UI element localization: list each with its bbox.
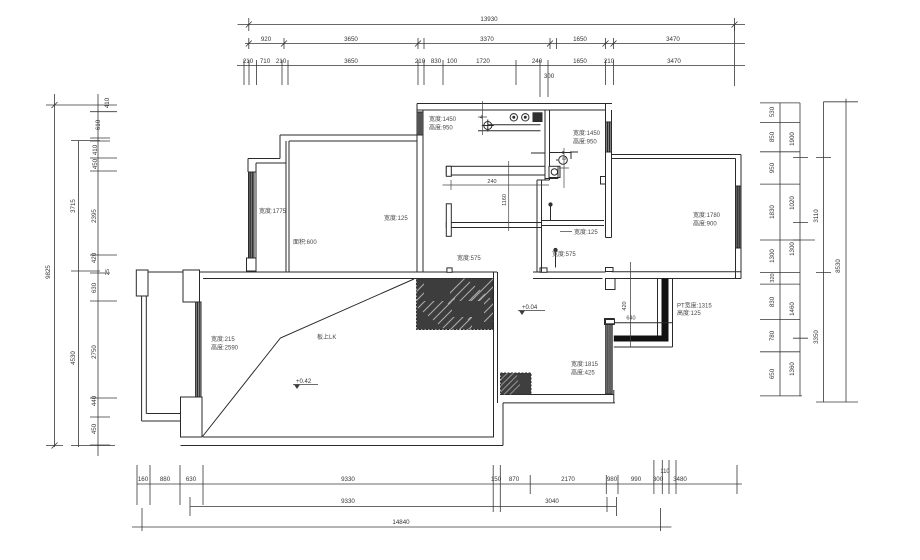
svg-text:9330: 9330	[341, 498, 355, 505]
svg-text:宽度:575: 宽度:575	[457, 254, 481, 262]
svg-text:1650: 1650	[573, 36, 587, 43]
svg-text:420: 420	[622, 301, 628, 310]
svg-text:3040: 3040	[545, 498, 559, 505]
svg-text:100: 100	[447, 58, 458, 65]
svg-text:2395: 2395	[91, 209, 98, 223]
svg-text:920: 920	[261, 36, 272, 43]
svg-text:320: 320	[770, 273, 776, 282]
svg-text:240: 240	[487, 179, 496, 185]
svg-text:宽度:1775: 宽度:1775	[259, 207, 287, 215]
svg-text:870: 870	[509, 476, 520, 483]
svg-text:3350: 3350	[813, 330, 820, 344]
svg-text:420: 420	[91, 252, 98, 263]
svg-text:410: 410	[104, 97, 111, 108]
svg-text:1160: 1160	[502, 194, 508, 206]
svg-text:宽度:215: 宽度:215	[211, 335, 235, 343]
svg-text:PT宽度:1315: PT宽度:1315	[677, 302, 712, 310]
svg-text:高度:2590: 高度:2590	[211, 344, 239, 352]
svg-text:830: 830	[431, 58, 442, 65]
svg-text:880: 880	[160, 476, 171, 483]
svg-text:1900: 1900	[789, 132, 796, 146]
svg-text:宽度:1450: 宽度:1450	[429, 115, 457, 123]
svg-text:高度:125: 高度:125	[677, 309, 701, 317]
svg-text:650: 650	[769, 368, 776, 379]
svg-text:3715: 3715	[70, 199, 77, 213]
svg-text:1650: 1650	[573, 58, 587, 65]
svg-text:高度:950: 高度:950	[429, 124, 453, 132]
svg-text:450: 450	[91, 423, 98, 434]
svg-text:8: 8	[562, 157, 568, 160]
svg-text:530: 530	[769, 106, 776, 117]
svg-text:3370: 3370	[480, 36, 494, 43]
svg-text:3480: 3480	[673, 476, 687, 483]
svg-text:160: 160	[138, 476, 149, 483]
svg-text:640: 640	[626, 316, 635, 322]
svg-text:210: 210	[604, 58, 615, 65]
svg-text:630: 630	[186, 476, 197, 483]
svg-text:3650: 3650	[344, 36, 358, 43]
svg-text:宽度:575: 宽度:575	[552, 250, 576, 258]
svg-text:1360: 1360	[789, 362, 796, 376]
svg-text:300: 300	[653, 476, 664, 483]
svg-text:610: 610	[95, 119, 102, 130]
svg-text:410: 410	[92, 144, 99, 155]
svg-text:4: 4	[480, 115, 483, 121]
svg-text:14840: 14840	[392, 519, 410, 526]
svg-text:440: 440	[91, 395, 98, 406]
svg-text:高度:425: 高度:425	[571, 369, 595, 377]
svg-text:990: 990	[631, 476, 642, 483]
svg-text:4530: 4530	[70, 351, 77, 365]
svg-text:1460: 1460	[789, 302, 796, 316]
svg-text:3470: 3470	[667, 58, 681, 65]
svg-text:高度:950: 高度:950	[573, 138, 597, 146]
svg-text:3110: 3110	[813, 209, 820, 223]
svg-text:9825: 9825	[45, 265, 52, 279]
svg-text:3650: 3650	[344, 58, 358, 65]
svg-text:710: 710	[260, 58, 271, 65]
svg-text:25: 25	[105, 269, 111, 275]
svg-text:9330: 9330	[341, 476, 355, 483]
svg-text:13930: 13930	[480, 16, 498, 23]
svg-text:150: 150	[491, 476, 502, 483]
svg-text:780: 780	[769, 330, 776, 341]
svg-text:1020: 1020	[789, 196, 796, 210]
svg-text:830: 830	[769, 296, 776, 307]
svg-text:110: 110	[660, 469, 670, 475]
svg-text:1300: 1300	[769, 249, 776, 263]
svg-text:高度:900: 高度:900	[693, 220, 717, 228]
svg-text:8530: 8530	[835, 259, 842, 273]
svg-text:240: 240	[532, 58, 543, 65]
svg-text:宽度:125: 宽度:125	[384, 214, 408, 222]
svg-text:630: 630	[91, 282, 98, 293]
svg-text:宽度:125: 宽度:125	[574, 228, 598, 236]
svg-text:面积:600: 面积:600	[293, 238, 317, 246]
svg-text:宽度:1450: 宽度:1450	[573, 129, 601, 137]
svg-text:450: 450	[92, 158, 99, 169]
svg-text:300: 300	[544, 73, 555, 80]
svg-text:3470: 3470	[666, 36, 680, 43]
svg-text:210: 210	[415, 58, 426, 65]
svg-text:980: 980	[607, 476, 618, 483]
svg-text:950: 950	[769, 162, 776, 173]
svg-text:2170: 2170	[561, 476, 575, 483]
svg-text:宽度:1780: 宽度:1780	[693, 211, 721, 219]
svg-text:210: 210	[276, 58, 287, 65]
svg-text:850: 850	[769, 131, 776, 142]
svg-text:1300: 1300	[789, 242, 796, 256]
svg-text:210: 210	[243, 58, 254, 65]
svg-text:1830: 1830	[769, 205, 776, 219]
svg-text:1720: 1720	[476, 58, 490, 65]
svg-text:板上LK: 板上LK	[317, 333, 336, 341]
svg-text:宽度:1815: 宽度:1815	[571, 360, 599, 368]
svg-text:2750: 2750	[91, 345, 98, 359]
